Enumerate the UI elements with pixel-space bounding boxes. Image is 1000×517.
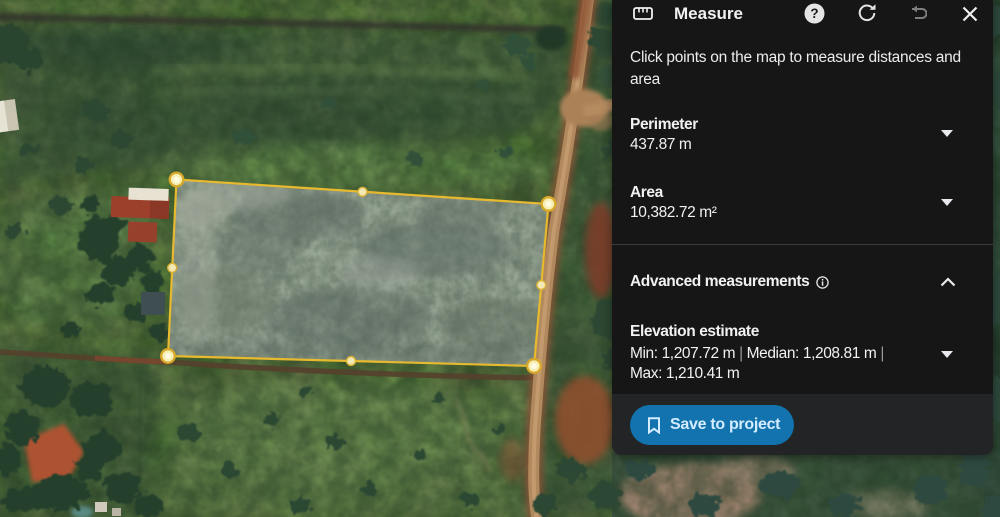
svg-text:?: ? (810, 6, 818, 21)
